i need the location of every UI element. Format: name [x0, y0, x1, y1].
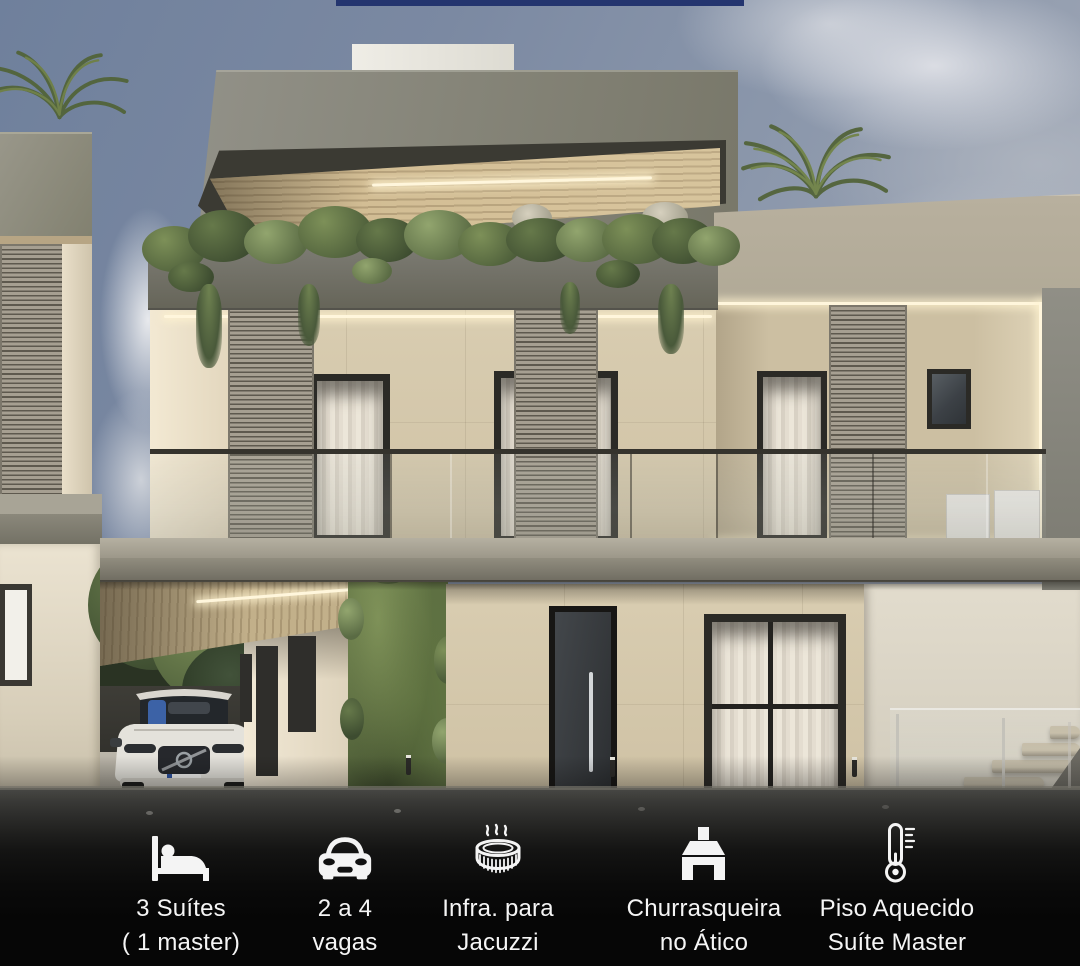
feature-label-line1: Piso Aquecido [781, 892, 1013, 926]
hanging-vine [196, 284, 222, 368]
plant-blob [688, 226, 740, 266]
glass-seam [630, 454, 632, 544]
plant-blob [338, 598, 364, 640]
hanging-vine [298, 284, 320, 346]
floor-slab [100, 538, 1080, 560]
hanging-vine [560, 282, 580, 334]
feature-label-line2: Suíte Master [781, 926, 1013, 960]
thermometer-icon [781, 820, 1013, 884]
jacuzzi-icon [382, 820, 614, 884]
property-render-image: 3 Suítes ( 1 master) 2 a 4 vagas [0, 0, 1080, 966]
top-navy-bar [336, 0, 744, 6]
balustrade-glass [150, 454, 1046, 546]
glass-seam [716, 454, 718, 544]
small-window [927, 369, 971, 429]
neighbor-window [0, 584, 32, 686]
feature-jacuzzi: Infra. para Jacuzzi [382, 820, 614, 960]
feature-label-line2: Jacuzzi [382, 926, 614, 960]
plant-blob [596, 260, 640, 288]
neighbor-louver-panel [0, 244, 64, 498]
glass-reflection [450, 454, 452, 544]
slab-shadow [100, 580, 1080, 590]
feature-label-line1: Infra. para [382, 892, 614, 926]
neighbor-slab [0, 494, 102, 516]
plant-blob [340, 698, 364, 740]
feature-heated-floor: Piso Aquecido Suíte Master [781, 820, 1013, 960]
side-window [240, 654, 252, 722]
small-window-glass [932, 374, 966, 424]
floor-slab-front [100, 558, 1080, 582]
hanging-vine [658, 284, 684, 354]
neighbor-pilaster [62, 244, 92, 498]
palm-tree-left [0, 44, 137, 149]
side-window [288, 636, 316, 732]
glass-seam [872, 454, 874, 544]
glass-seam [390, 454, 392, 544]
glass-reflection [986, 454, 988, 544]
neighbor-window-glass [5, 590, 27, 680]
neighbor-slab-front [0, 514, 102, 546]
window-mullion [712, 704, 838, 709]
plant-blob [352, 258, 392, 284]
